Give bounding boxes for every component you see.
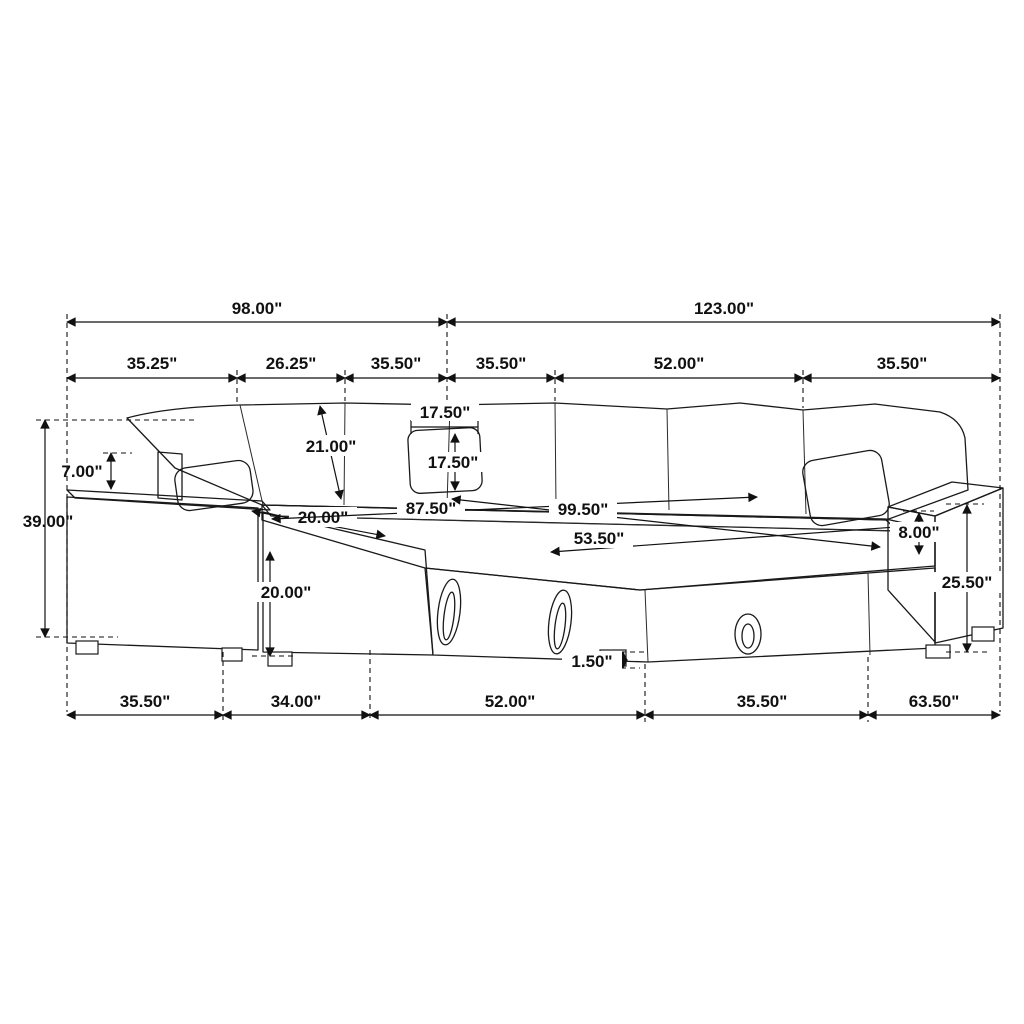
dim-label: 8.00" [898, 523, 939, 542]
dim-label: 26.25" [266, 354, 317, 373]
dim-label: 87.50" [406, 499, 457, 518]
dim-label: 39.00" [23, 512, 74, 531]
dim-label: 35.50" [737, 692, 788, 711]
dim-label: 7.00" [61, 462, 102, 481]
dimensions: 98.00" 123.00" 35.25" 26.25" 35.50" 35.5… [23, 299, 1001, 715]
dim-label: 25.50" [942, 573, 993, 592]
dim-label: 1.50" [571, 652, 612, 671]
dim-label: 17.50" [428, 453, 479, 472]
dim-label: 17.50" [420, 403, 471, 422]
dim-front-seg-4: 35.50" [645, 692, 868, 715]
sofa-foot [76, 641, 98, 654]
dim-seat-depth: 20.00" [252, 507, 385, 536]
dim-label: 123.00" [694, 299, 754, 318]
right-lumbar-pillow [801, 449, 891, 528]
dim-arm-above-seat: 8.00" [890, 513, 948, 554]
dim-backrest-length: 21.00" [297, 406, 365, 499]
dim-back-seg-3: 35.50" [345, 354, 447, 378]
backrest-seam [667, 409, 669, 510]
dim-label: 99.50" [558, 500, 609, 519]
dim-back-seg-4: 35.50" [447, 354, 555, 378]
front-seam [645, 590, 648, 662]
dim-back-seg-6: 35.50" [803, 354, 1000, 378]
dim-pillow-height: 17.50" [420, 434, 486, 490]
left-arm-front-face [67, 497, 258, 650]
dim-overall-height: 39.00" [23, 420, 74, 637]
left-back-cushion-edge [158, 452, 182, 500]
dim-label: 35.25" [127, 354, 178, 373]
dim-label: 34.00" [271, 692, 322, 711]
dim-front-seg-5: 63.50" [868, 692, 1000, 715]
sleeper-front-face [425, 568, 935, 662]
dim-label: 98.00" [232, 299, 283, 318]
sofa-foot [972, 627, 994, 641]
dim-back-seg-1: 35.25" [67, 354, 237, 378]
dim-label: 20.00" [261, 583, 312, 602]
dim-leg-height: 1.50" [562, 651, 623, 671]
dim-label: 52.00" [485, 692, 536, 711]
dim-inner-width-full: 99.50" [452, 499, 880, 547]
loop-handle [545, 589, 575, 655]
dim-label: 52.00" [654, 354, 705, 373]
dim-label: 35.50" [877, 354, 928, 373]
dim-label: 35.50" [120, 692, 171, 711]
dim-seat-front-height: 20.00" [252, 552, 320, 656]
front-seam [868, 573, 870, 655]
backrest-seam [555, 403, 556, 507]
dim-label: 53.50" [574, 529, 625, 548]
sofa-dimension-drawing: 98.00" 123.00" 35.25" 26.25" 35.50" 35.5… [0, 0, 1024, 1024]
dim-front-seg-1: 35.50" [67, 692, 223, 715]
backrest-seam [803, 410, 806, 514]
dim-front-seg-2: 34.00" [223, 692, 370, 715]
loop-handle [735, 614, 761, 654]
dim-top-total-left: 98.00" [67, 299, 447, 322]
dim-front-seg-3: 52.00" [370, 692, 645, 715]
dim-label: 35.50" [371, 354, 422, 373]
loop-handle [434, 578, 464, 646]
sofa-foot [268, 652, 292, 666]
dimension-diagram: 98.00" 123.00" 35.25" 26.25" 35.50" 35.5… [0, 0, 1024, 1024]
dim-label: 21.00" [306, 437, 357, 456]
dim-label: 63.50" [909, 692, 960, 711]
dim-pillow-above-arm: 7.00" [61, 453, 111, 489]
dim-back-seg-5: 52.00" [555, 354, 803, 378]
backrest-seam [240, 405, 263, 505]
sofa-foot [222, 648, 242, 661]
dim-label: 35.50" [476, 354, 527, 373]
sofa-illustration [67, 403, 1003, 666]
dim-top-total-right: 123.00" [447, 299, 1000, 322]
dim-back-seg-2: 26.25" [237, 354, 345, 378]
